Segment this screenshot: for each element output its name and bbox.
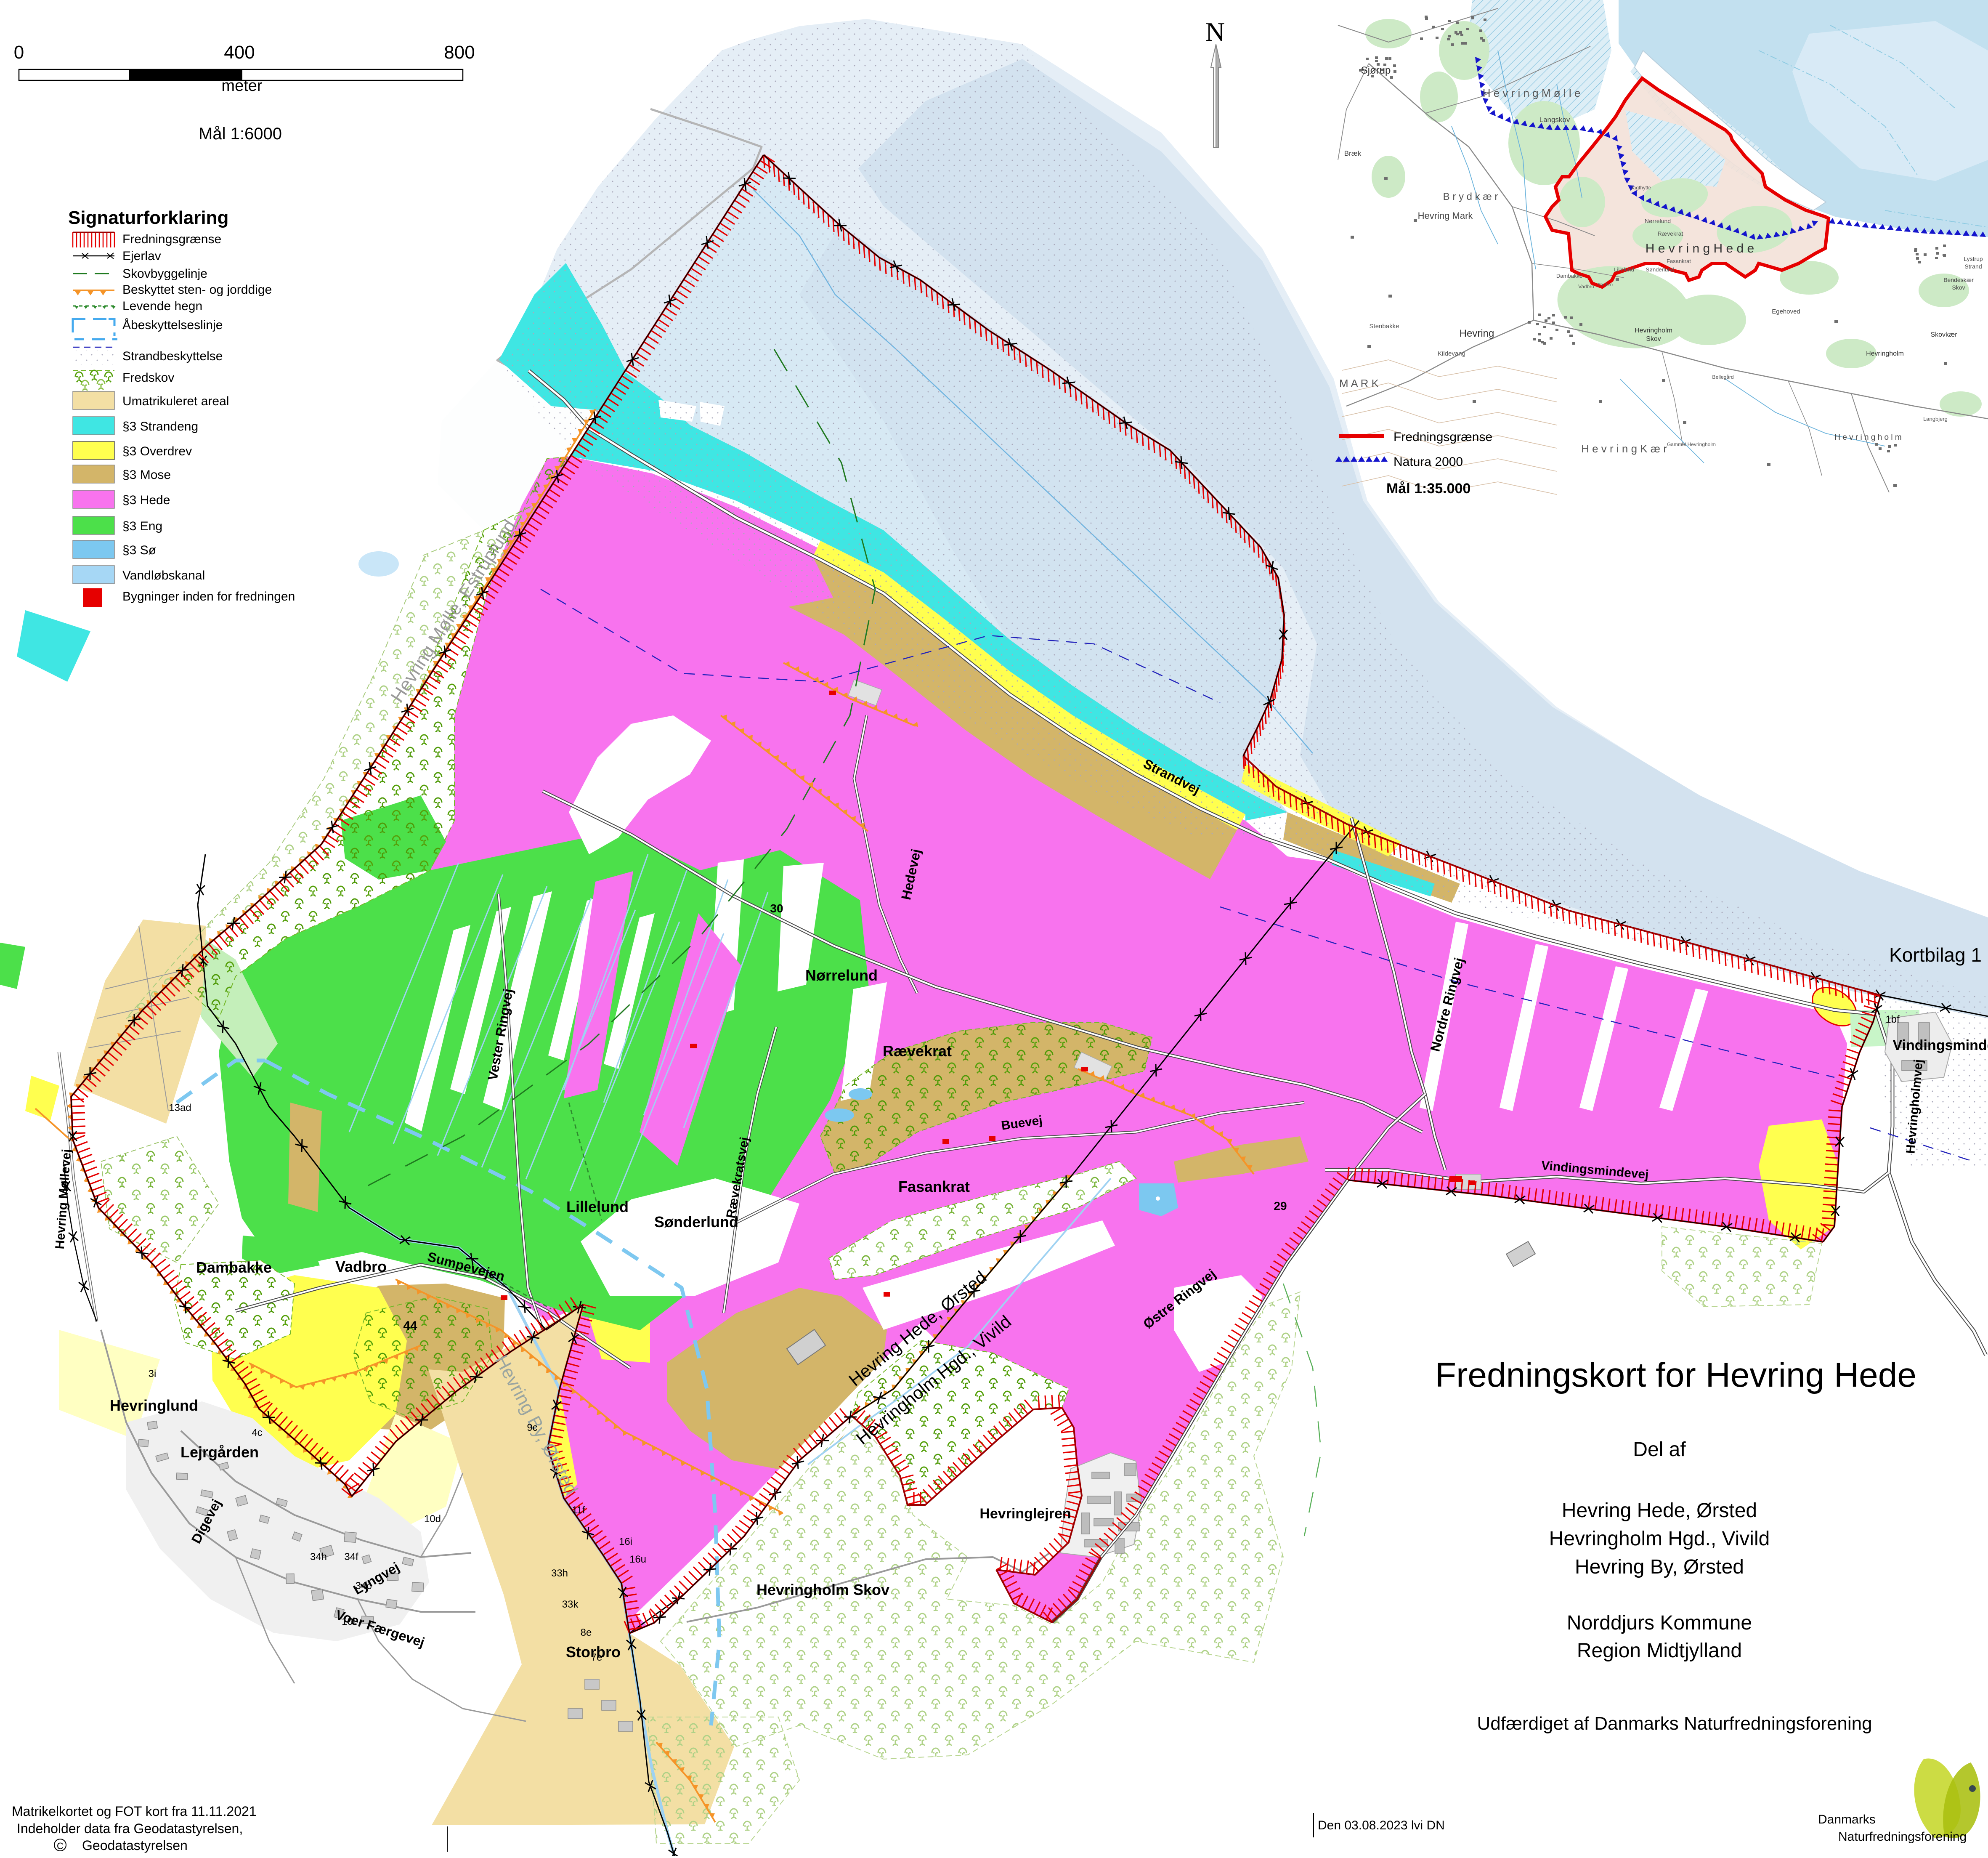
svg-text:Bendeskær: Bendeskær — [1943, 276, 1974, 283]
svg-text:Fasankrat: Fasankrat — [898, 1178, 970, 1195]
svg-text:9c: 9c — [527, 1422, 537, 1433]
svg-text:Hevring Mark: Hevring Mark — [1418, 210, 1473, 221]
svg-text:§3 Overdrev: §3 Overdrev — [122, 444, 192, 458]
svg-text:Kortbilag 1: Kortbilag 1 — [1889, 944, 1982, 966]
svg-text:Bræk: Bræk — [1344, 149, 1362, 157]
svg-text:10l: 10l — [342, 1616, 355, 1627]
svg-text:Levende hegn: Levende hegn — [122, 299, 202, 313]
svg-text:Rævekrat: Rævekrat — [883, 1042, 952, 1060]
svg-text:Vadbro: Vadbro — [1578, 284, 1594, 290]
svg-text:Lillelund: Lillelund — [1614, 266, 1634, 273]
svg-text:Åbeskyttelseslinje: Åbeskyttelseslinje — [122, 318, 223, 332]
svg-text:§3 Sø: §3 Sø — [122, 543, 156, 557]
svg-text:Signaturforklaring: Signaturforklaring — [68, 207, 228, 228]
svg-text:34c: 34c — [356, 1580, 372, 1592]
svg-text:Hevring Hede, Ørsted: Hevring Hede, Ørsted — [1562, 1499, 1757, 1522]
svg-text:Strandbeskyttelse: Strandbeskyttelse — [122, 349, 223, 363]
svg-text:Skovkær: Skovkær — [1930, 331, 1957, 338]
svg-text:M A R K: M A R K — [1339, 377, 1379, 390]
svg-text:H e v r i n g M ø l l e: H e v r i n g M ø l l e — [1483, 87, 1581, 99]
svg-text:Del af: Del af — [1633, 1438, 1686, 1461]
svg-text:Strand: Strand — [1964, 263, 1982, 270]
svg-text:Vadbro: Vadbro — [335, 1258, 387, 1275]
svg-text:Dambakke: Dambakke — [196, 1259, 272, 1276]
svg-text:16u: 16u — [629, 1554, 646, 1565]
svg-text:Hevringholm Skov: Hevringholm Skov — [756, 1581, 889, 1598]
svg-text:Lejrgården: Lejrgården — [180, 1443, 259, 1461]
svg-text:Bøllegård: Bøllegård — [1712, 374, 1733, 380]
svg-text:1bf: 1bf — [1885, 1014, 1900, 1025]
svg-text:Naturfredningsforening: Naturfredningsforening — [1838, 1830, 1967, 1844]
svg-text:Fredningsgrænse: Fredningsgrænse — [122, 232, 221, 246]
svg-text:§3 Strandeng: §3 Strandeng — [122, 420, 198, 433]
svg-text:Skov: Skov — [1646, 335, 1661, 343]
svg-text:Matrikelkortet og FOT kort fra: Matrikelkortet og FOT kort fra 11.11.202… — [12, 1804, 257, 1819]
svg-text:H e v r i n g H e d e: H e v r i n g H e d e — [1646, 242, 1754, 255]
svg-text:Nørrelund: Nørrelund — [1645, 218, 1671, 224]
svg-text:Region Midtjylland: Region Midtjylland — [1577, 1640, 1742, 1662]
svg-text:Fredningskort for Hevring Hede: Fredningskort for Hevring Hede — [1435, 1356, 1916, 1394]
svg-text:34f: 34f — [344, 1551, 358, 1563]
svg-text:Norddjurs Kommune: Norddjurs Kommune — [1567, 1612, 1752, 1634]
svg-text:Nørrelund: Nørrelund — [805, 967, 878, 984]
svg-text:Lystrup: Lystrup — [1964, 255, 1983, 262]
svg-text:400: 400 — [224, 42, 255, 63]
svg-text:N: N — [1205, 17, 1225, 47]
svg-text:Hevringholm Hgd., Vivild: Hevringholm Hgd., Vivild — [1549, 1528, 1770, 1550]
svg-text:8e: 8e — [581, 1627, 592, 1638]
svg-text:44: 44 — [403, 1319, 417, 1333]
svg-text:Stenbakke: Stenbakke — [1370, 323, 1399, 330]
svg-text:34h: 34h — [310, 1551, 327, 1563]
svg-text:Natura 2000: Natura 2000 — [1393, 455, 1463, 469]
svg-text:Hevringlejren: Hevringlejren — [979, 1506, 1071, 1522]
svg-text:Den 03.08.2023 lvi DN: Den 03.08.2023 lvi DN — [1318, 1818, 1445, 1832]
svg-text:7e: 7e — [591, 1652, 603, 1663]
svg-text:Hevringlund: Hevringlund — [110, 1397, 198, 1414]
svg-text:Jagthytte: Jagthytte — [1631, 185, 1651, 191]
svg-text:Beskyttet sten- og jorddige: Beskyttet sten- og jorddige — [122, 283, 272, 297]
svg-text:Skovbyggelinje: Skovbyggelinje — [122, 267, 207, 281]
svg-text:16i: 16i — [619, 1536, 632, 1547]
svg-text:29: 29 — [1274, 1199, 1287, 1212]
svg-text:33k: 33k — [562, 1599, 579, 1610]
svg-text:H e v r i n g h o l m: H e v r i n g h o l m — [1834, 433, 1901, 442]
svg-text:Hevringholm: Hevringholm — [1635, 327, 1672, 334]
svg-text:Lillelund: Lillelund — [566, 1198, 629, 1215]
svg-text:§3 Mose: §3 Mose — [122, 468, 171, 482]
svg-text:Udfærdiget af Danmarks Naturfr: Udfærdiget af Danmarks Naturfredningsfor… — [1477, 1713, 1872, 1734]
svg-text:§3 Eng: §3 Eng — [122, 519, 162, 533]
svg-text:§3 Hede: §3 Hede — [122, 493, 170, 507]
svg-text:Mål 1:6000: Mål 1:6000 — [199, 125, 282, 143]
svg-text:0: 0 — [14, 42, 24, 63]
svg-text:Hevring: Hevring — [1460, 328, 1494, 339]
svg-text:Hevring By, Ørsted: Hevring By, Ørsted — [1575, 1556, 1744, 1578]
svg-text:Indeholder data fra Geodatasty: Indeholder data fra Geodatastyrelsen, — [17, 1821, 243, 1836]
svg-text:meter: meter — [221, 77, 262, 95]
svg-text:Bygninger inden for fredningen: Bygninger inden for fredningen — [122, 590, 295, 603]
svg-text:Rævekrat: Rævekrat — [1658, 230, 1683, 237]
svg-text:Skov: Skov — [1952, 284, 1965, 291]
svg-text:Gammel Hevringholm: Gammel Hevringholm — [1667, 441, 1716, 447]
svg-text:Fredningsgrænse: Fredningsgrænse — [1393, 430, 1492, 444]
svg-text:13ad: 13ad — [169, 1102, 191, 1114]
svg-text:Langskov: Langskov — [1539, 116, 1570, 124]
svg-text:11f: 11f — [572, 1504, 585, 1516]
svg-text:C: C — [57, 1841, 64, 1851]
svg-text:Sønderlund: Sønderlund — [1646, 266, 1674, 273]
svg-text:Kildevang: Kildevang — [1438, 350, 1465, 357]
svg-text:800: 800 — [444, 42, 475, 63]
svg-text:Geodatastyrelsen: Geodatastyrelsen — [82, 1838, 188, 1853]
svg-text:Fasankrat: Fasankrat — [1667, 258, 1691, 264]
svg-text:B r y d k æ r: B r y d k æ r — [1443, 191, 1498, 202]
svg-text:Fredskov: Fredskov — [122, 371, 174, 385]
svg-text:Vandløbskanal: Vandløbskanal — [122, 569, 205, 582]
svg-text:Ejerlav: Ejerlav — [122, 249, 161, 263]
svg-text:Hevringholm: Hevringholm — [1866, 350, 1904, 357]
svg-text:33h: 33h — [551, 1568, 568, 1579]
svg-text:4c: 4c — [252, 1427, 262, 1438]
svg-text:Egehoved: Egehoved — [1772, 308, 1800, 315]
svg-text:Vindingsminde: Vindingsminde — [1892, 1037, 1988, 1053]
svg-text:3i: 3i — [149, 1368, 157, 1380]
svg-text:30: 30 — [770, 902, 783, 915]
svg-text:Mål 1:35.000: Mål 1:35.000 — [1386, 481, 1470, 497]
svg-text:Dambakke: Dambakke — [1556, 273, 1582, 279]
svg-text:Umatrikuleret areal: Umatrikuleret areal — [122, 394, 229, 408]
svg-text:Danmarks: Danmarks — [1818, 1813, 1876, 1826]
svg-text:Storbro: Storbro — [1598, 282, 1613, 287]
svg-text:10d: 10d — [424, 1513, 441, 1525]
svg-text:Langbjerg: Langbjerg — [1923, 416, 1948, 422]
svg-text:Sjørup: Sjørup — [1361, 65, 1391, 76]
svg-text:H e v r i n g K æ r: H e v r i n g K æ r — [1581, 442, 1667, 455]
